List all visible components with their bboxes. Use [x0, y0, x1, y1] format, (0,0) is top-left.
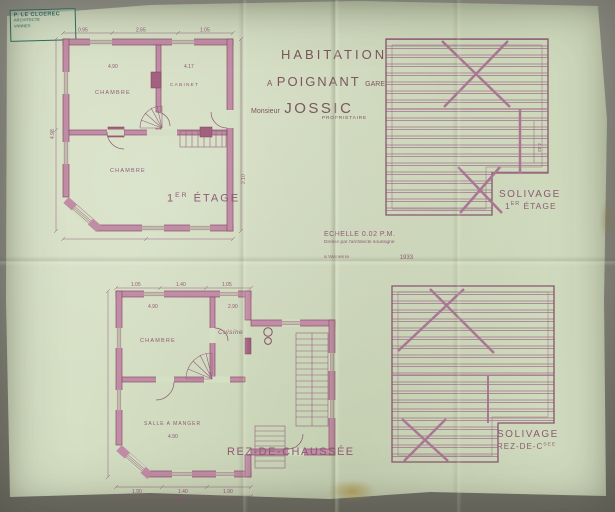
etage-floor-plan: 0.95 2.65 1.05 4.90 4.17 4.98 2.10 CHAMB… — [50, 24, 250, 248]
dim-label: 2.65 — [136, 28, 146, 34]
dim-label: 6.50 — [176, 498, 186, 504]
subtitle-prefix: A — [267, 79, 272, 88]
dim-label: 4.90 — [168, 434, 178, 440]
room-label-cuisine: Cuisine — [218, 329, 243, 336]
photographed-plan-sheet: P. LE CLOEREC ARCHITECTE VANNES — [0, 0, 615, 512]
etage-label: 1ER ÉTAGE — [167, 192, 240, 205]
rdc-label: REZ-DE-CHAUSSÉE — [227, 446, 355, 458]
paper-stain-edge — [600, 200, 614, 240]
solivage-etage-label-line2: 1ER ÉTAGE — [505, 201, 557, 211]
owner-role: PROPRIETAIRE — [322, 116, 367, 121]
dim-label: 1.90 — [223, 489, 233, 495]
room-label-chambre-2: CHAMBRE — [110, 168, 146, 174]
dim-label: 2.90 — [228, 304, 238, 310]
solivage-etage-label-line1: SOLIVAGE — [499, 189, 561, 200]
scale-note-line3: à Vannes le 1933 — [324, 246, 413, 264]
sol-etage-word: ÉTAGE — [523, 201, 556, 211]
scale-note-line2: Dressé par l'architecte soussigné — [324, 240, 395, 245]
rdc-dimension-lines — [106, 286, 253, 498]
scale-note-line1: ECHELLE 0.02 P.M. — [324, 231, 395, 238]
owner-prefix: Monsieur — [251, 108, 280, 115]
rdc-stove — [264, 328, 272, 345]
dim-label: 1.05 — [131, 282, 141, 288]
dim-label: 4.90 — [148, 304, 158, 310]
stamp-line3: VANNES — [14, 24, 54, 29]
dim-label: 1.40 — [176, 282, 186, 288]
stamp-line2: ARCHITECTE — [14, 18, 54, 23]
dim-label: 1.05 — [222, 282, 232, 288]
dim-label: 2.10 — [241, 174, 247, 184]
dim-label: 0.95 — [78, 28, 88, 34]
scale-note-place: à Vannes le — [324, 255, 349, 260]
room-label-chambre-rdc: CHAMBRE — [140, 338, 176, 344]
dim-label: 1.90 — [132, 489, 142, 495]
rdc-floor-plan: 1.05 1.40 1.05 4.90 2.90 4.90 1.90 1.40 … — [100, 278, 355, 504]
paper-stain — [328, 480, 376, 502]
sheet-subtitle: A POIGNANT GARE — [267, 73, 385, 91]
etage-label-sup: ER — [175, 192, 188, 199]
rdc-chimney — [245, 338, 251, 354]
etage-stair — [140, 106, 226, 147]
room-label-cabinet: CABINET — [170, 82, 199, 88]
sol-rdc-main: REZ-DE-C — [497, 442, 543, 451]
etage-label-num: 1 — [167, 193, 175, 205]
scale-note-year: 1933 — [400, 255, 413, 261]
sol-etage-sup: ER — [511, 201, 520, 207]
dim-label: 4.98 — [50, 129, 56, 139]
owner-name: JOSSIC — [284, 100, 353, 117]
solivage-rdc-label-line1: SOLIVAGE — [497, 429, 559, 440]
etage-label-word: ÉTAGE — [194, 193, 240, 205]
sheet-title: HABITATION — [281, 47, 387, 62]
solivage-rdc-label-line2: REZ-DE-CSEE — [497, 442, 556, 451]
dim-label: 4.43 — [537, 143, 542, 152]
sol-rdc-sup: SEE — [543, 442, 556, 447]
dim-label: 4.90 — [108, 64, 118, 70]
dim-label: 4.17 — [184, 64, 194, 70]
room-label-chambre-1: CHAMBRE — [95, 90, 131, 96]
subtitle-suffix: GARE — [365, 81, 385, 88]
dim-label: 1.40 — [178, 489, 188, 495]
room-label-salle-a-manger: SALLE A MANGER — [144, 421, 201, 427]
subtitle-place: POIGNANT — [277, 74, 361, 89]
dim-label: 1.05 — [200, 28, 210, 34]
